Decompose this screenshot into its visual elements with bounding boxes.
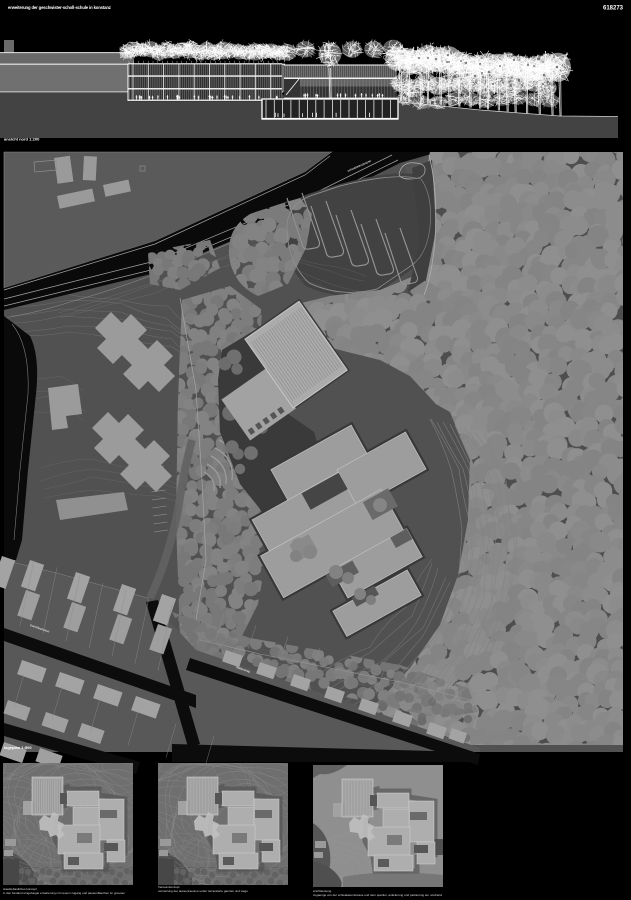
svg-text:618273: 618273 — [603, 6, 624, 12]
svg-text:erweiterung der geschwister-sc: erweiterung der geschwister-scholl-schul… — [8, 5, 111, 10]
svg-text:lageplan 1:500: lageplan 1:500 — [4, 745, 32, 750]
svg-text:ansicht nord 1:200: ansicht nord 1:200 — [4, 137, 40, 142]
svg-text:zugaenge von der schwaketenstr: zugaenge von der schwaketenstrasse und d… — [313, 893, 442, 897]
svg-text:vernetzung der aussenraeume ue: vernetzung der aussenraeume ueber terras… — [158, 889, 248, 893]
svg-text:in den bestand eingefuegte erw: in den bestand eingefuegte erweiterung m… — [3, 891, 125, 895]
